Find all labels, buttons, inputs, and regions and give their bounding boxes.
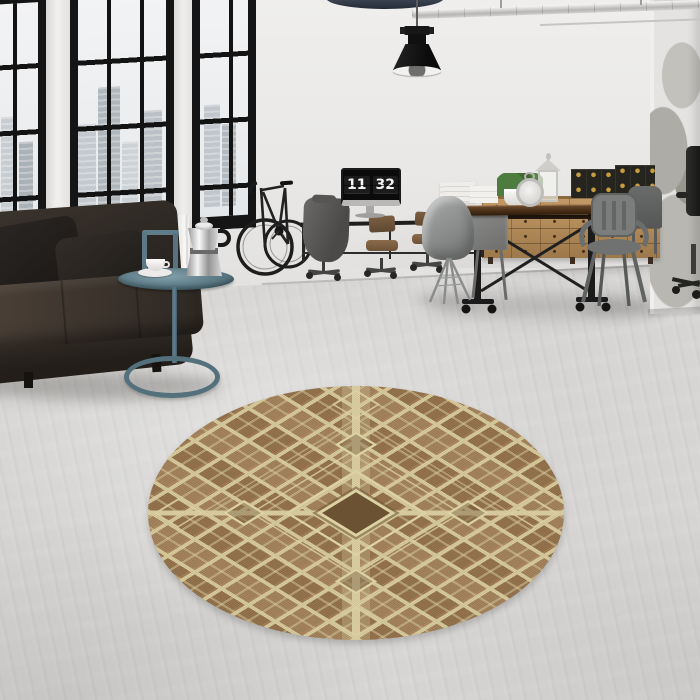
metal-armchair: [574, 192, 656, 310]
clock-minutes: 32: [373, 176, 398, 195]
side-table-stem: [172, 287, 177, 363]
chair-wheel: [390, 272, 397, 279]
side-table-stem: [173, 233, 178, 273]
coffee-cup-handle: [163, 261, 170, 268]
rug-edge-ornament: [154, 498, 202, 527]
rug-edge-ornament: [332, 390, 380, 419]
rug-edge-ornament: [332, 607, 380, 636]
shell-chair: [422, 196, 474, 260]
office-chair-right-arm: [676, 192, 688, 198]
monitor-flip-clock: 11 32: [341, 168, 401, 206]
loft-room-photo: 11 32: [0, 0, 700, 700]
chair-wheel: [672, 286, 680, 294]
lantern-finial: [546, 153, 551, 160]
pipe-hanger: [640, 0, 642, 5]
window-glass: [78, 0, 166, 231]
moka-pot-upper: [188, 228, 220, 250]
moka-pot-knob: [200, 217, 208, 223]
side-table-loop-base: [124, 356, 220, 398]
monitor-stand-base: [355, 213, 385, 218]
clock-hours: 11: [344, 176, 369, 195]
city-building: [98, 86, 120, 219]
lamp-fixture-neck: [408, 34, 426, 45]
sofa-leg: [24, 372, 33, 388]
chair-wheel: [410, 264, 417, 271]
pendant-lamp-rim: [393, 66, 441, 76]
round-silver-ornament: [516, 178, 544, 207]
chair-wheel: [306, 272, 313, 279]
city-building: [204, 104, 220, 207]
rug-diamond-pattern: [148, 386, 564, 640]
shell-chair-legs: [424, 256, 476, 306]
chair-wheel: [334, 274, 341, 281]
office-chair-seat: [366, 240, 398, 251]
chair-wheel: [364, 270, 371, 277]
window-glass: [0, 2, 38, 240]
pipe-hanger: [500, 0, 502, 8]
rug-edge-ornament: [510, 498, 558, 527]
window-mullion-pillar: [174, 0, 192, 236]
white-book-stack: [470, 186, 498, 203]
office-chair-right-post: [691, 244, 696, 274]
moka-pot-lid: [195, 222, 213, 230]
jacket-on-chair: [302, 197, 350, 263]
moka-pot-lower: [186, 252, 222, 276]
office-chair-right-back: [686, 146, 700, 216]
chair-wheel: [692, 290, 700, 299]
round-geometric-rug: [148, 386, 564, 640]
